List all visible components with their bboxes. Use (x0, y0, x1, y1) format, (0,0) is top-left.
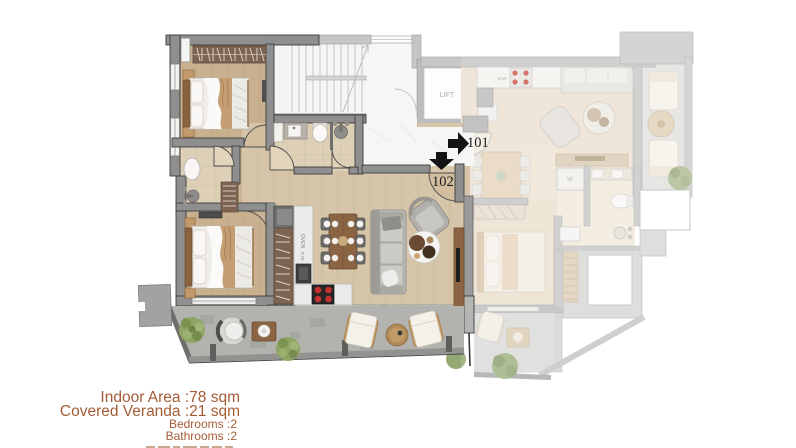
svg-text:Bathrooms :2: Bathrooms :2 (166, 429, 238, 443)
svg-text:LIFT: LIFT (440, 92, 455, 99)
svg-text:OVEN: OVEN (299, 234, 305, 249)
svg-text:102: 102 (432, 174, 454, 190)
svg-text:101: 101 (467, 135, 489, 151)
svg-text:D.W: D.W (300, 252, 305, 262)
